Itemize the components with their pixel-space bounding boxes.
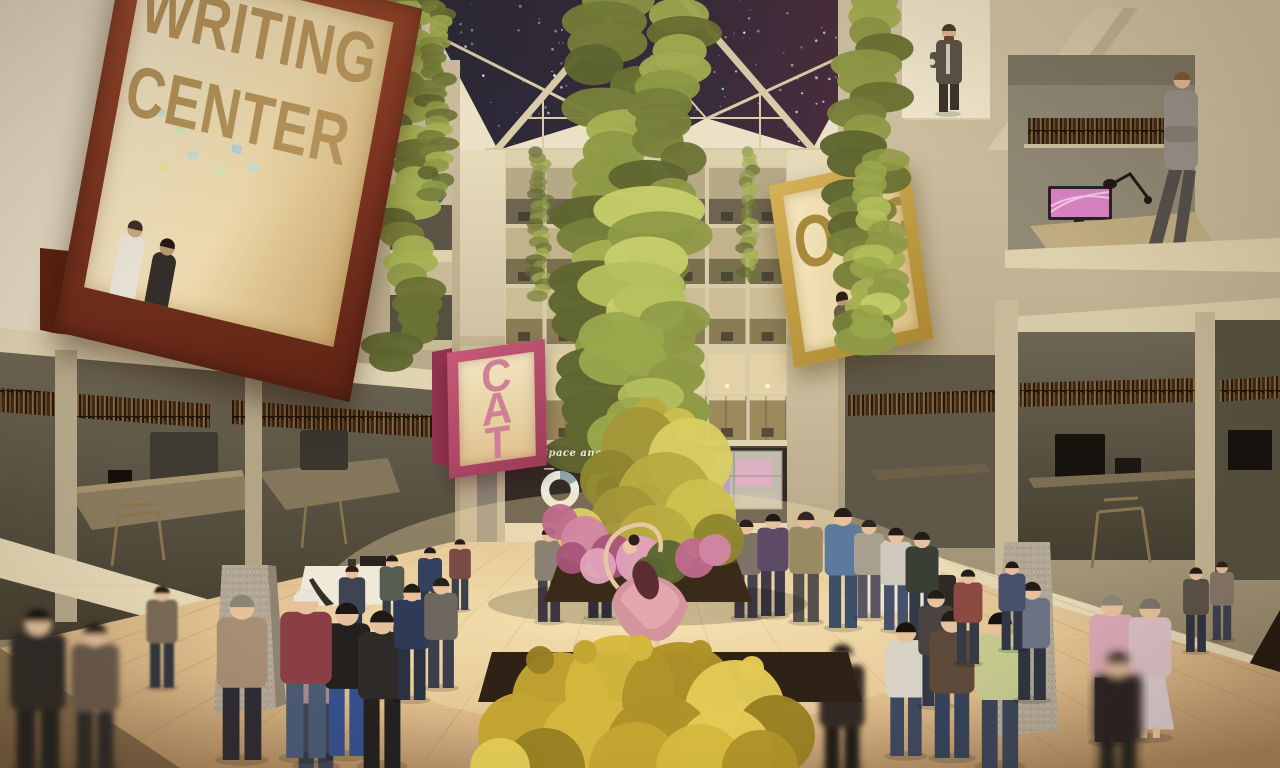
person-silhouette bbox=[144, 238, 180, 311]
cat-sign: C A T bbox=[447, 339, 547, 479]
org-sign-window: ORG bbox=[783, 172, 919, 353]
cat-letter: T bbox=[484, 423, 510, 463]
bookshelf bbox=[1028, 118, 1172, 144]
org-sign: ORG bbox=[769, 156, 934, 368]
person-silhouette bbox=[832, 292, 859, 350]
person-silhouette bbox=[856, 279, 886, 344]
monitor bbox=[1228, 430, 1272, 470]
bookshelf bbox=[1220, 376, 1280, 402]
sticky-note bbox=[159, 162, 170, 172]
monitor bbox=[1055, 434, 1105, 478]
org-text: ORG bbox=[788, 176, 919, 287]
upper-alcove bbox=[1008, 55, 1218, 270]
writing-center-window: WRITING CENTER bbox=[84, 0, 393, 347]
bookshelf bbox=[1020, 378, 1195, 407]
person-silhouette bbox=[109, 219, 149, 303]
sticky-note bbox=[187, 150, 198, 160]
pier bbox=[1195, 312, 1215, 584]
coffee-cup bbox=[929, 59, 935, 65]
pier bbox=[995, 300, 1018, 575]
atrium-rendering: WRITING CENTER C A T ORG Space analysis bbox=[0, 0, 1280, 768]
cat-sign-window: C A T bbox=[458, 352, 536, 467]
sticky-note bbox=[215, 165, 226, 175]
beard bbox=[944, 36, 954, 41]
